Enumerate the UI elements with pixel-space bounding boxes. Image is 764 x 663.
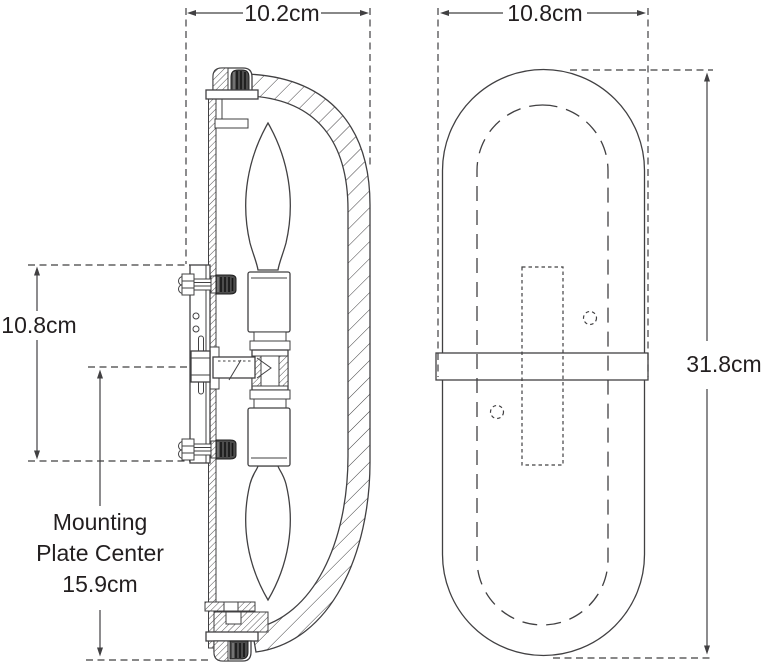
dim-side-width: 10.2cm xyxy=(187,0,369,26)
top-bracket xyxy=(215,119,248,128)
dim-mounting-center: Mounting Plate Center 15.9cm xyxy=(36,370,164,657)
dimension-annotations: 10.2cm 10.8cm 10.8cm xyxy=(1,0,761,660)
socket-lower xyxy=(248,390,290,466)
candle-bulb-upper xyxy=(246,123,291,270)
mounting-note-line3: 15.9cm xyxy=(62,571,137,597)
dim-front-height: 31.8cm xyxy=(686,73,761,655)
sconce-dimension-drawing: 10.2cm 10.8cm 10.8cm xyxy=(0,0,764,663)
mounting-band xyxy=(436,353,648,380)
front-view xyxy=(436,70,648,656)
center-nut xyxy=(191,351,210,382)
junction-box xyxy=(252,350,288,390)
mounting-note-line2: Plate Center xyxy=(36,540,164,566)
dim-backplate-height: 10.8cm xyxy=(1,267,76,460)
front-height-label: 31.8cm xyxy=(686,351,761,377)
candle-bulb-lower xyxy=(246,466,291,600)
front-width-label: 10.8cm xyxy=(507,0,582,26)
backplate-height-label: 10.8cm xyxy=(1,312,76,338)
top-plate xyxy=(206,90,258,99)
socket-upper xyxy=(248,272,290,350)
technical-drawing-svg: 10.2cm 10.8cm 10.8cm xyxy=(0,0,764,663)
bottom-plate xyxy=(206,632,258,641)
side-view xyxy=(179,68,371,661)
side-width-label: 10.2cm xyxy=(244,0,319,26)
mounting-note-line1: Mounting xyxy=(53,509,148,535)
dim-front-width: 10.8cm xyxy=(440,0,646,26)
